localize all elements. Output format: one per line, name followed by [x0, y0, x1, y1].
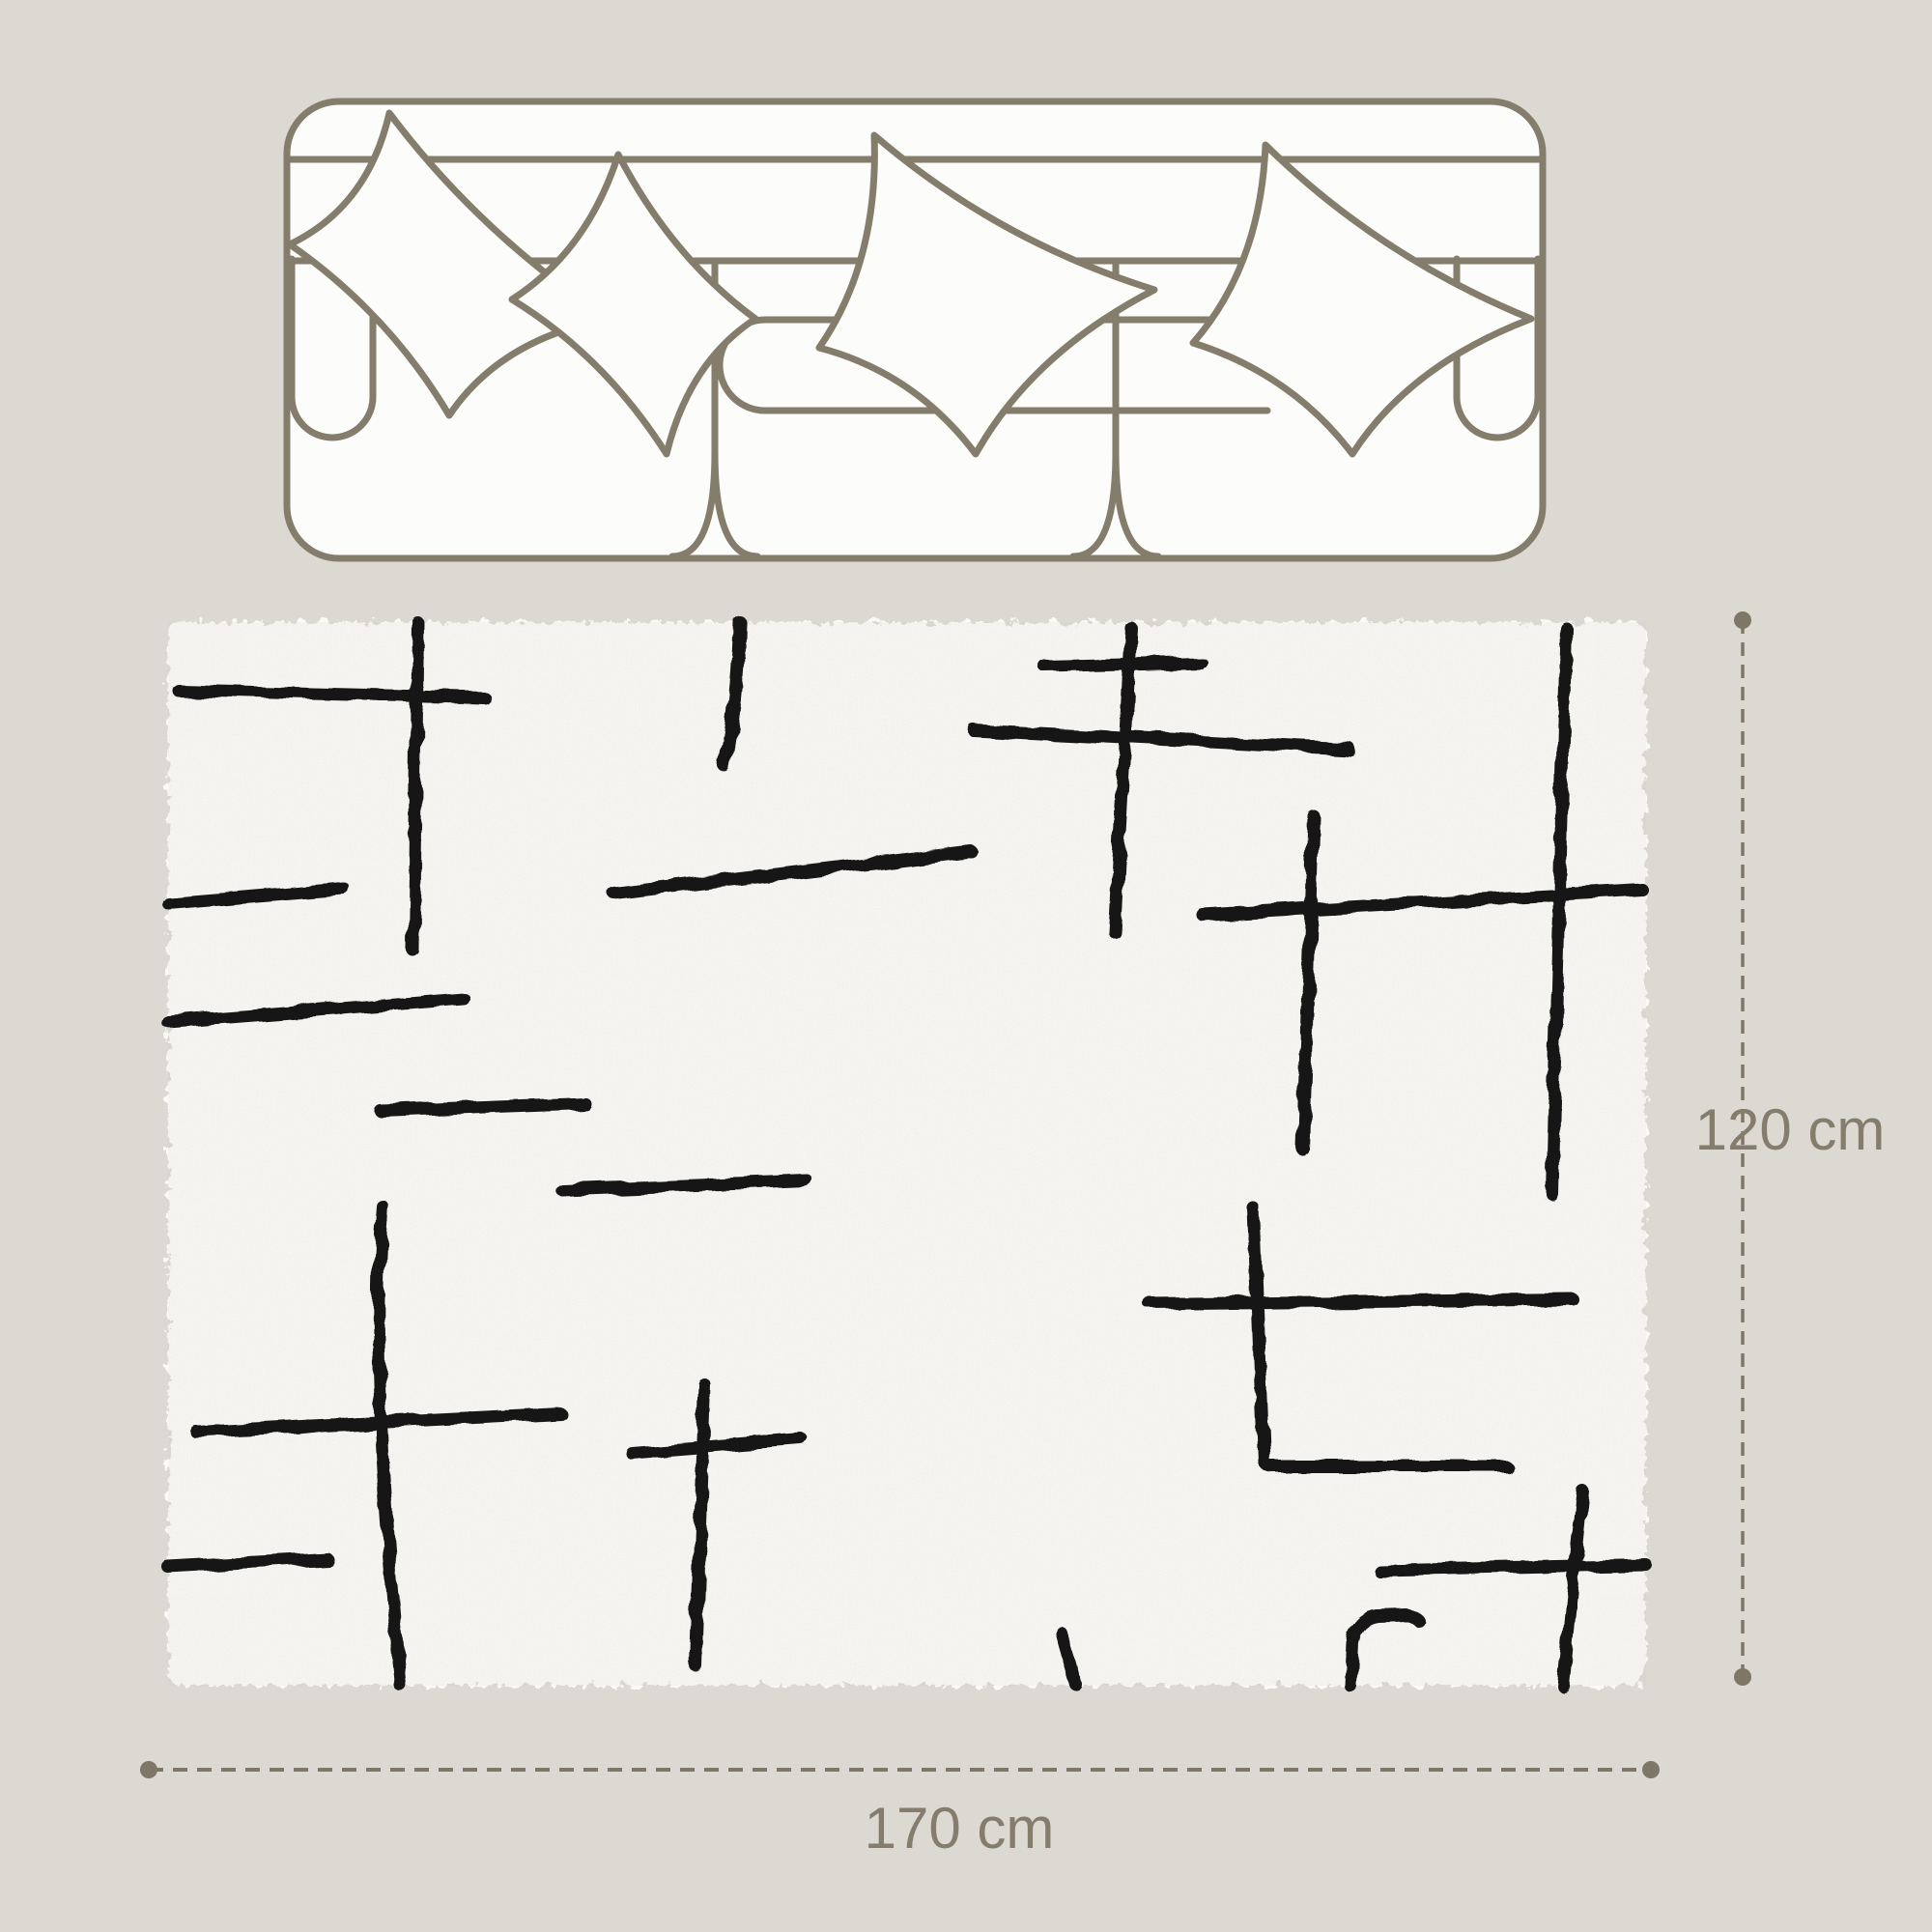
- rug-pattern-line: [413, 622, 417, 951]
- height-dimension-label: 120 cm: [1695, 1097, 1886, 1162]
- diagram-canvas: 120 cm 170 cm: [0, 0, 1932, 1932]
- rug-pattern-line: [1379, 1565, 1646, 1571]
- rug-pattern-line: [381, 1103, 584, 1111]
- dimension-endpoint-dot: [1734, 611, 1751, 629]
- rug-pattern-line: [179, 691, 485, 698]
- rug-pattern-line: [1151, 1299, 1573, 1304]
- rug-image: [168, 622, 1646, 1686]
- rug-pattern-line: [168, 1558, 327, 1567]
- dimension-endpoint-dot: [1642, 1761, 1660, 1778]
- sofa-icon: [287, 101, 1543, 558]
- width-dimension: [140, 1761, 1660, 1778]
- dimension-endpoint-dot: [140, 1761, 157, 1778]
- product-dimension-diagram: 120 cm 170 cm: [0, 0, 1932, 1932]
- width-dimension-label: 170 cm: [865, 1796, 1055, 1861]
- dimension-endpoint-dot: [1734, 1668, 1751, 1686]
